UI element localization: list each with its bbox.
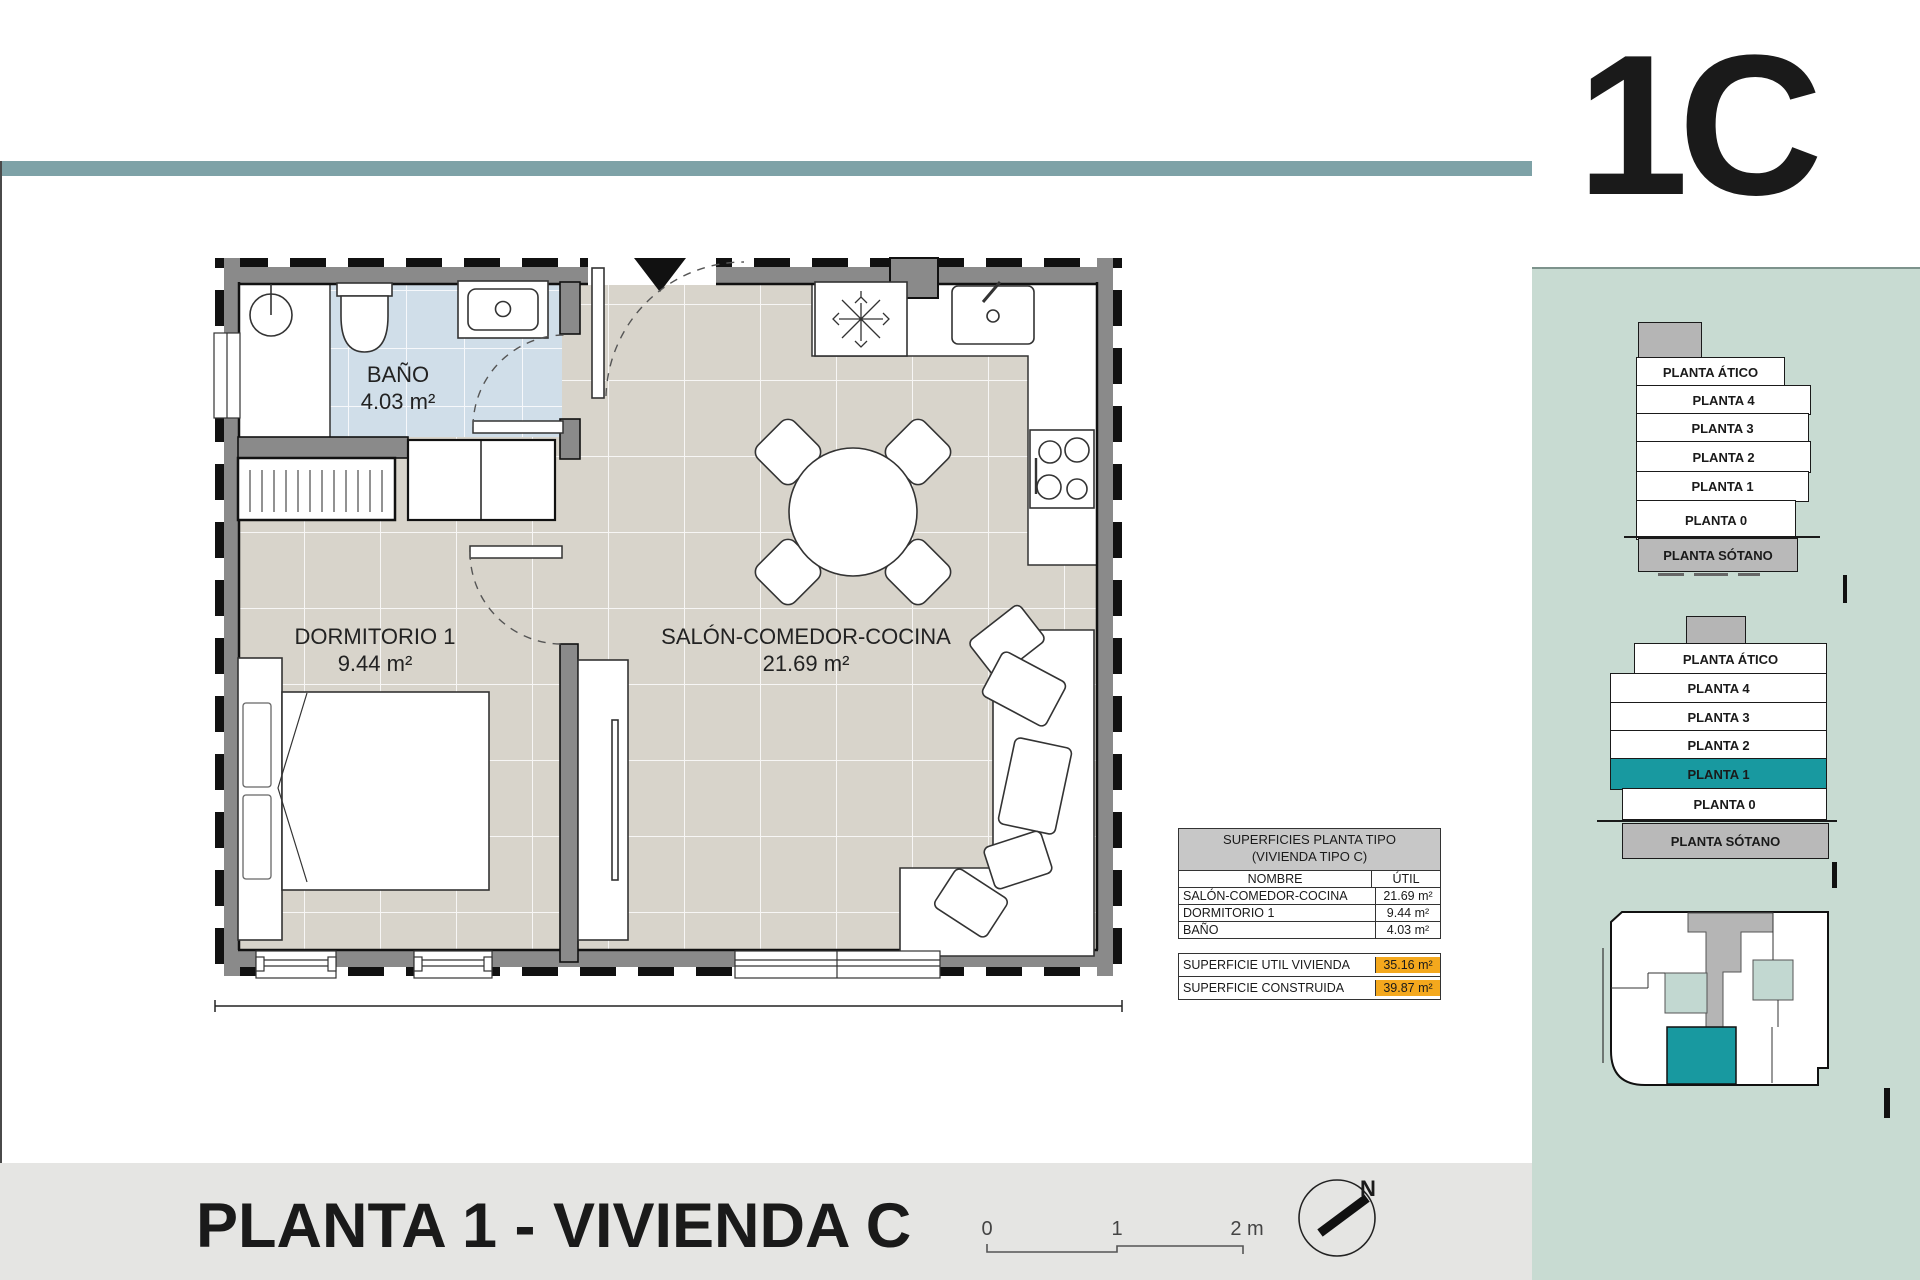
- stack-lower-groundline: [1597, 820, 1837, 822]
- dining-set: [751, 415, 955, 609]
- table-row: BAÑO 4.03 m²: [1178, 921, 1441, 939]
- bathroom-bottom-wall: [238, 437, 408, 458]
- frame-mark: [1884, 1088, 1890, 1118]
- stack-upper-p1: PLANTA 1: [1636, 471, 1809, 502]
- chair: [881, 535, 955, 609]
- bedroom-door: [470, 546, 562, 644]
- stack-lower-p3: PLANTA 3: [1610, 702, 1827, 732]
- flue-pillar: [890, 258, 938, 298]
- bath-sink-counter: [458, 281, 548, 338]
- window: [214, 333, 240, 418]
- table-row: DORMITORIO 1 9.44 m²: [1178, 904, 1441, 922]
- sofa-cushion: [997, 737, 1072, 835]
- bath-sink-drain: [496, 302, 511, 317]
- sofa-cushion: [980, 650, 1067, 728]
- stack-lower-p4: PLANTA 4: [1610, 673, 1827, 704]
- surfaces-table: SUPERFICIES PLANTA TIPO (VIVIENDA TIPO C…: [1178, 828, 1441, 1000]
- bathroom-door: [473, 335, 565, 433]
- burner: [1065, 438, 1089, 462]
- tv: [612, 720, 618, 880]
- plan-sheet: 1C: [0, 0, 1920, 1280]
- stack-upper-p3: PLANTA 3: [1636, 413, 1809, 443]
- table-row: SALÓN-COMEDOR-COCINA 21.69 m²: [1178, 887, 1441, 905]
- bathroom-fixtures: [250, 281, 548, 352]
- toilet-cistern: [337, 283, 392, 296]
- room-label-salon: SALÓN-COMEDOR-COCINA 21.69 m²: [661, 624, 951, 678]
- sheet-title: PLANTA 1 - VIVIENDA C: [196, 1190, 911, 1262]
- burner: [1039, 441, 1061, 463]
- tv-unit: [578, 660, 628, 940]
- stack-lower-p2: PLANTA 2: [1610, 730, 1827, 760]
- frame-mark: [1832, 862, 1837, 888]
- entrance-notch: [634, 258, 686, 292]
- total-built-highlight: 39.87 m²: [1375, 980, 1440, 996]
- col-header-nombre: NOMBRE: [1179, 871, 1371, 887]
- stack-upper-p0: PLANTA 0: [1636, 500, 1796, 540]
- double-wardrobe: [408, 440, 555, 520]
- entrance-door-leaf: [592, 268, 604, 398]
- room-area: 21.69 m²: [661, 651, 951, 678]
- burner: [1037, 475, 1061, 499]
- sink-drain: [987, 310, 999, 322]
- clipped-text-artifact: [1658, 573, 1684, 576]
- total-util-highlight: 35.16 m²: [1375, 957, 1440, 973]
- bathroom-right-wall: [560, 282, 580, 334]
- window: [735, 951, 940, 978]
- window: [414, 951, 492, 978]
- room-label-dormitorio: DORMITORIO 1 9.44 m²: [295, 624, 456, 678]
- room-area: 4.03 m²: [361, 389, 436, 416]
- table-total-row: SUPERFICIE CONSTRUIDA 39.87 m²: [1178, 976, 1441, 1000]
- burner: [1067, 479, 1087, 499]
- stack-lower-p1-highlighted: PLANTA 1: [1610, 758, 1827, 790]
- bath-sink-basin: [468, 289, 538, 330]
- chair: [751, 415, 825, 489]
- stove: [1030, 430, 1094, 508]
- stack-upper-sotano: PLANTA SÓTANO: [1638, 538, 1798, 572]
- shower-room-floor: [239, 282, 330, 437]
- entrance-door: [588, 258, 744, 398]
- toilet-bowl: [341, 296, 388, 352]
- table-total-row: SUPERFICIE UTIL VIVIENDA 35.16 m²: [1178, 953, 1441, 977]
- unit-code-label: 1C: [1545, 26, 1845, 226]
- room-area: 9.44 m²: [295, 651, 456, 678]
- hall-wall-stub: [560, 419, 580, 459]
- kitchen-counter-right: [1028, 282, 1098, 565]
- bed-fold-lines: [278, 693, 307, 882]
- chair: [751, 535, 825, 609]
- drying-rack: [238, 458, 395, 520]
- kitchen-sink: [952, 286, 1034, 344]
- left-frame-line: [0, 161, 2, 1280]
- terrace-line: [215, 1000, 1122, 1012]
- stack-lower-sotano: PLANTA SÓTANO: [1622, 823, 1829, 859]
- col-header-util: ÚTIL: [1371, 871, 1440, 887]
- bathroom-door-swing: [473, 335, 565, 427]
- window: [256, 951, 336, 978]
- headboard-strip: [238, 658, 282, 940]
- table-header-row: NOMBRE ÚTIL: [1178, 870, 1441, 888]
- clipped-text-artifact: [1694, 573, 1728, 576]
- north-label: N: [1360, 1176, 1376, 1202]
- stack-lower-atico: PLANTA ÁTICO: [1634, 643, 1827, 675]
- sofa-cushion: [932, 867, 1009, 939]
- exterior-walls: [215, 258, 1122, 976]
- wardrobes: [238, 440, 555, 520]
- pillow: [243, 703, 271, 787]
- scale-tick-0: 0: [981, 1218, 992, 1241]
- room-name: SALÓN-COMEDOR-COCINA: [661, 624, 951, 651]
- drying-rack-bars: [250, 470, 382, 512]
- table-gap: [1178, 939, 1441, 954]
- stack-upper-p2: PLANTA 2: [1636, 441, 1811, 473]
- sofa-base: [900, 630, 1094, 956]
- kitchen-counter-edge: [812, 282, 1097, 565]
- stack-upper-atico: PLANTA ÁTICO: [1636, 357, 1785, 387]
- scale-tick-2m: 2 m: [1230, 1218, 1263, 1241]
- bathroom-door-leaf: [473, 421, 563, 433]
- bedroom-door-swing: [470, 552, 562, 644]
- surfaces-table-title: SUPERFICIES PLANTA TIPO (VIVIENDA TIPO C…: [1178, 828, 1441, 871]
- room-name: DORMITORIO 1: [295, 624, 456, 651]
- snowflake-icon: [833, 291, 889, 347]
- top-ribbon: [0, 161, 1532, 176]
- stack-lower-roof: [1686, 616, 1746, 645]
- room-name: BAÑO: [361, 362, 436, 389]
- sofa-cushion: [968, 603, 1047, 679]
- shower-icon: [250, 294, 292, 336]
- bedroom-door-leaf: [470, 546, 562, 558]
- sofa-cushion: [983, 830, 1054, 890]
- kitchen-counter-top: [812, 282, 1098, 356]
- faucet: [983, 282, 1000, 302]
- dining-table: [789, 448, 917, 576]
- stack-upper-p4: PLANTA 4: [1636, 385, 1811, 415]
- kitchen-fixtures: [815, 282, 1094, 508]
- stack-lower-p0: PLANTA 0: [1622, 788, 1827, 820]
- room-label-bano: BAÑO 4.03 m²: [361, 362, 436, 416]
- bedroom-partition-wall: [560, 644, 578, 962]
- bed: [282, 692, 489, 890]
- entrance-door-swing: [606, 262, 744, 396]
- frame-mark: [1843, 575, 1847, 603]
- chair: [881, 415, 955, 489]
- bedroom-furniture: [238, 658, 628, 940]
- fridge: [815, 282, 907, 356]
- clipped-text-artifact: [1738, 573, 1760, 576]
- pillow: [243, 795, 271, 879]
- stack-upper-roof: [1638, 322, 1702, 359]
- scale-tick-1: 1: [1111, 1218, 1122, 1241]
